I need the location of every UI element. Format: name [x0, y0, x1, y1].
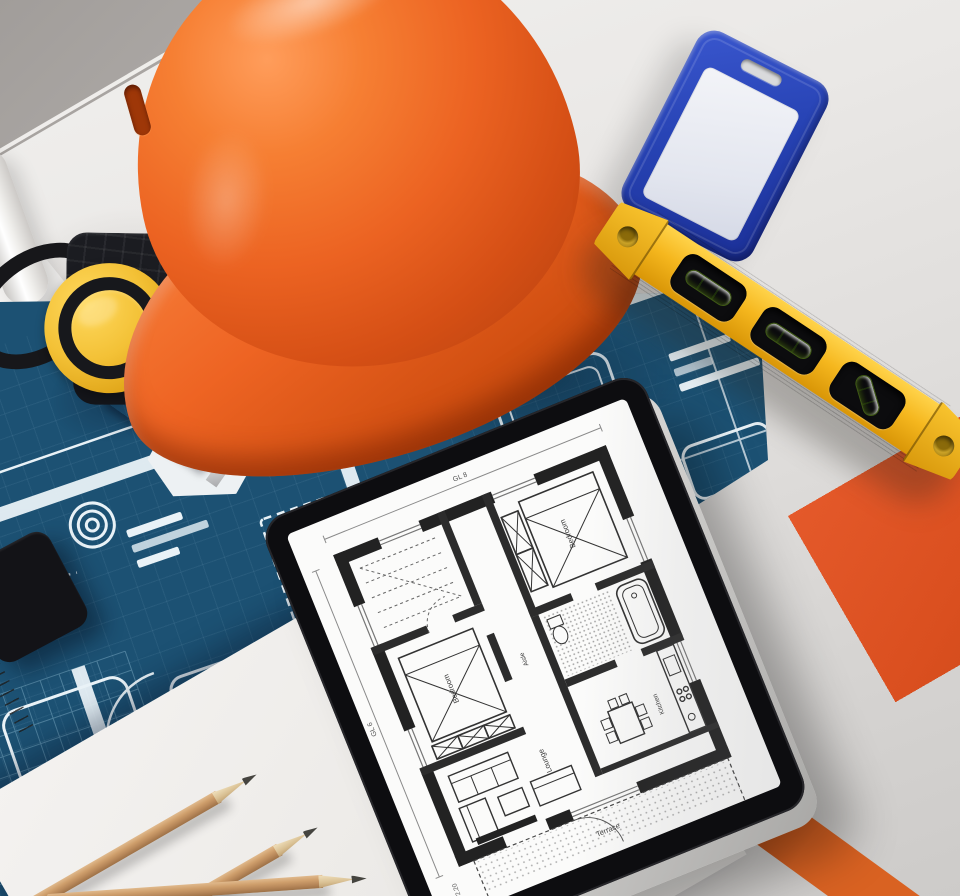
flat-lay-photo: GL 8 GL 6 2.20 — [0, 0, 960, 896]
level-hanging-hole — [613, 222, 642, 251]
level-hanging-hole — [929, 431, 958, 460]
level-vial — [853, 373, 881, 418]
pencil-sharpened-wood — [318, 873, 355, 888]
pencil-tip — [351, 874, 367, 883]
